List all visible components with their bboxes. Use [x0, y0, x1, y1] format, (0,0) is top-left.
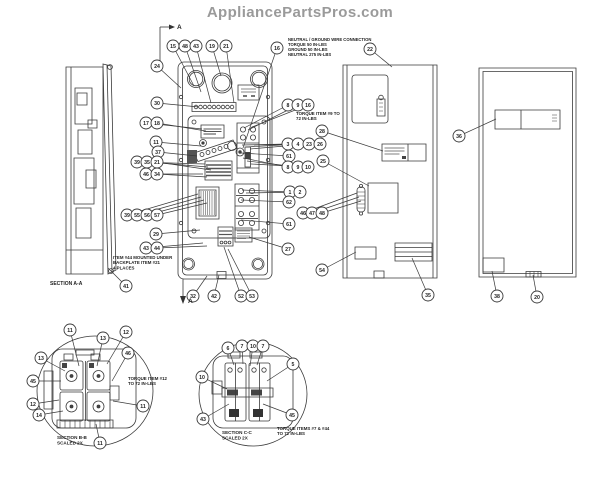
svg-text:46: 46: [125, 351, 131, 357]
callout-4: 4: [292, 138, 304, 150]
callout-35: 35: [422, 289, 434, 301]
svg-text:19: 19: [209, 44, 215, 50]
svg-text:13: 13: [38, 356, 44, 362]
svg-text:9: 9: [297, 103, 300, 109]
svg-text:7: 7: [241, 344, 244, 350]
svg-text:35: 35: [144, 160, 150, 166]
callout-5: 5: [287, 358, 299, 370]
svg-text:54: 54: [319, 268, 325, 274]
svg-text:10: 10: [305, 165, 311, 171]
callout-26: 26: [314, 138, 326, 150]
callout-30: 30: [151, 97, 163, 109]
svg-text:44: 44: [154, 246, 160, 252]
parts-diagram: AppliancePartsPros.com: [0, 0, 600, 482]
svg-text:6: 6: [227, 346, 230, 352]
callout-45: 45: [27, 375, 39, 387]
torque-item12-note: TORQUE ITEM #12TO 72 IN-LBS: [128, 376, 168, 386]
callout-10: 10: [302, 161, 314, 173]
svg-text:5: 5: [292, 362, 295, 368]
callout-16: 16: [302, 99, 314, 111]
callout-leader-line: [322, 131, 383, 151]
section-cc-label: SECTION C-CSCALED 2X: [222, 430, 253, 440]
svg-text:27: 27: [285, 247, 291, 253]
svg-text:56: 56: [144, 213, 150, 219]
callout-25: 25: [317, 155, 329, 167]
svg-text:37: 37: [155, 150, 161, 156]
svg-text:22: 22: [367, 47, 373, 53]
callout-layer: 1548431921162224301718113739352146343955…: [0, 0, 600, 482]
callout-43: 43: [190, 40, 202, 52]
svg-text:17: 17: [143, 121, 149, 127]
svg-text:11: 11: [97, 441, 103, 447]
svg-text:10: 10: [250, 344, 256, 350]
callout-leader-line: [242, 190, 290, 192]
callout-17: 17: [140, 117, 152, 129]
svg-text:8: 8: [287, 165, 290, 171]
callout-22: 22: [364, 43, 376, 55]
item44-note: ITEM #44 MOUNTED UNDERBACKPLATE ITEM #21…: [113, 255, 173, 270]
torque-items7-44-note: TORQUE ITEMS #7 & #44TO 72 IN-LBS: [277, 426, 330, 436]
callout-44: 44: [151, 242, 163, 254]
callout-54: 54: [316, 264, 328, 276]
svg-text:15: 15: [170, 44, 176, 50]
svg-text:28: 28: [319, 129, 325, 135]
callout-leader-line: [226, 46, 234, 103]
svg-text:21: 21: [154, 160, 160, 166]
callout-19: 19: [206, 40, 218, 52]
callout-48: 48: [179, 40, 191, 52]
callout-21: 21: [220, 40, 232, 52]
callout-43: 43: [197, 413, 209, 425]
svg-text:45: 45: [289, 413, 295, 419]
svg-text:12: 12: [123, 330, 129, 336]
svg-text:10: 10: [199, 375, 205, 381]
callout-29: 29: [150, 228, 162, 240]
callout-62: 62: [283, 196, 295, 208]
torque-item9-note: TORQUE ITEM #9 TO72 IN-LBS: [296, 111, 340, 121]
callout-57: 57: [151, 209, 163, 221]
svg-text:11: 11: [67, 328, 73, 334]
callout-leader-line: [185, 46, 201, 92]
callout-leader-line: [156, 142, 201, 146]
svg-text:25: 25: [320, 159, 326, 165]
svg-text:2: 2: [299, 190, 302, 196]
svg-text:24: 24: [154, 64, 160, 70]
callout-36: 36: [453, 130, 465, 142]
callout-leader-line: [224, 247, 241, 296]
svg-text:13: 13: [100, 336, 106, 342]
svg-text:16: 16: [305, 103, 311, 109]
svg-text:8: 8: [287, 103, 290, 109]
svg-text:4: 4: [297, 142, 300, 148]
svg-text:30: 30: [154, 101, 160, 107]
svg-text:16: 16: [274, 46, 280, 52]
svg-text:47: 47: [309, 211, 315, 217]
callout-leader-line: [156, 230, 200, 234]
svg-text:7: 7: [262, 344, 265, 350]
svg-text:35: 35: [425, 293, 431, 299]
callout-23: 23: [303, 138, 315, 150]
callout-11: 11: [64, 324, 76, 336]
svg-text:46: 46: [300, 211, 306, 217]
section-a-top-label: A: [177, 24, 182, 31]
callout-46: 46: [140, 168, 152, 180]
svg-text:48: 48: [319, 211, 325, 217]
svg-text:52: 52: [238, 294, 244, 300]
callout-leader-line: [241, 200, 289, 202]
svg-text:61: 61: [286, 222, 292, 228]
section-aa-label: SECTION A-A: [50, 281, 83, 287]
callout-leader-line: [157, 123, 206, 131]
callout-46: 46: [122, 347, 134, 359]
section-bb-label: SECTION B-BSCALED 2X: [57, 435, 88, 445]
neutral-ground-note: NEUTRAL / GROUND WIRE CONNECTIONTORQUE 5…: [288, 37, 371, 57]
svg-text:41: 41: [123, 284, 129, 290]
callout-13: 13: [35, 352, 47, 364]
svg-text:43: 43: [193, 44, 199, 50]
svg-text:57: 57: [154, 213, 160, 219]
section-a-bottom-label: A: [188, 298, 193, 305]
callout-11: 11: [137, 400, 149, 412]
svg-text:39: 39: [124, 213, 130, 219]
svg-text:43: 43: [200, 417, 206, 423]
svg-text:43: 43: [143, 246, 149, 252]
svg-text:20: 20: [534, 295, 540, 301]
callout-28: 28: [316, 125, 328, 137]
callout-7: 7: [257, 340, 269, 352]
svg-text:42: 42: [211, 294, 217, 300]
svg-text:26: 26: [317, 142, 323, 148]
svg-text:14: 14: [36, 413, 42, 419]
svg-text:3: 3: [287, 142, 290, 148]
callout-12: 12: [27, 398, 39, 410]
callout-14: 14: [33, 409, 45, 421]
svg-text:46: 46: [143, 172, 149, 178]
callout-48: 48: [316, 207, 328, 219]
svg-text:23: 23: [306, 142, 312, 148]
callout-38: 38: [491, 290, 503, 302]
svg-text:45: 45: [30, 379, 36, 385]
svg-text:9: 9: [297, 165, 300, 171]
callout-27: 27: [282, 243, 294, 255]
callout-43: 43: [140, 242, 152, 254]
callout-45: 45: [286, 409, 298, 421]
callout-leader-line: [196, 46, 211, 103]
callout-leader-line: [323, 161, 369, 186]
callout-leader-line: [243, 48, 277, 148]
svg-text:18: 18: [154, 121, 160, 127]
callout-6: 6: [222, 342, 234, 354]
callout-12: 12: [120, 326, 132, 338]
callout-leader-line: [228, 249, 252, 296]
callout-13: 13: [97, 332, 109, 344]
callout-24: 24: [151, 60, 163, 72]
svg-text:36: 36: [456, 134, 462, 140]
callout-leader-line: [241, 153, 289, 156]
callout-15: 15: [167, 40, 179, 52]
svg-text:11: 11: [140, 404, 146, 410]
svg-text:38: 38: [494, 294, 500, 300]
callout-leader-line: [244, 105, 288, 128]
svg-text:61: 61: [286, 154, 292, 160]
svg-text:39: 39: [134, 160, 140, 166]
callout-61: 61: [283, 218, 295, 230]
callout-18: 18: [151, 117, 163, 129]
callout-61: 61: [283, 150, 295, 162]
callout-7: 7: [236, 340, 248, 352]
svg-text:12: 12: [30, 402, 36, 408]
callout-52: 52: [235, 290, 247, 302]
callout-41: 41: [120, 280, 132, 292]
callout-53: 53: [246, 290, 258, 302]
callout-leader-line: [241, 220, 289, 224]
svg-text:62: 62: [286, 200, 292, 206]
svg-text:11: 11: [153, 140, 159, 146]
callout-11: 11: [94, 437, 106, 449]
callout-2: 2: [294, 186, 306, 198]
svg-text:34: 34: [154, 172, 160, 178]
callout-leader-line: [157, 203, 207, 215]
callout-16: 16: [271, 42, 283, 54]
svg-text:1: 1: [289, 190, 292, 196]
svg-text:48: 48: [182, 44, 188, 50]
callout-20: 20: [531, 291, 543, 303]
callout-leader-line: [157, 174, 207, 177]
svg-text:53: 53: [249, 294, 255, 300]
callout-10: 10: [196, 371, 208, 383]
svg-text:21: 21: [223, 44, 229, 50]
callout-34: 34: [151, 168, 163, 180]
svg-text:29: 29: [153, 232, 159, 238]
svg-text:55: 55: [134, 213, 140, 219]
callout-42: 42: [208, 290, 220, 302]
callout-21: 21: [151, 156, 163, 168]
